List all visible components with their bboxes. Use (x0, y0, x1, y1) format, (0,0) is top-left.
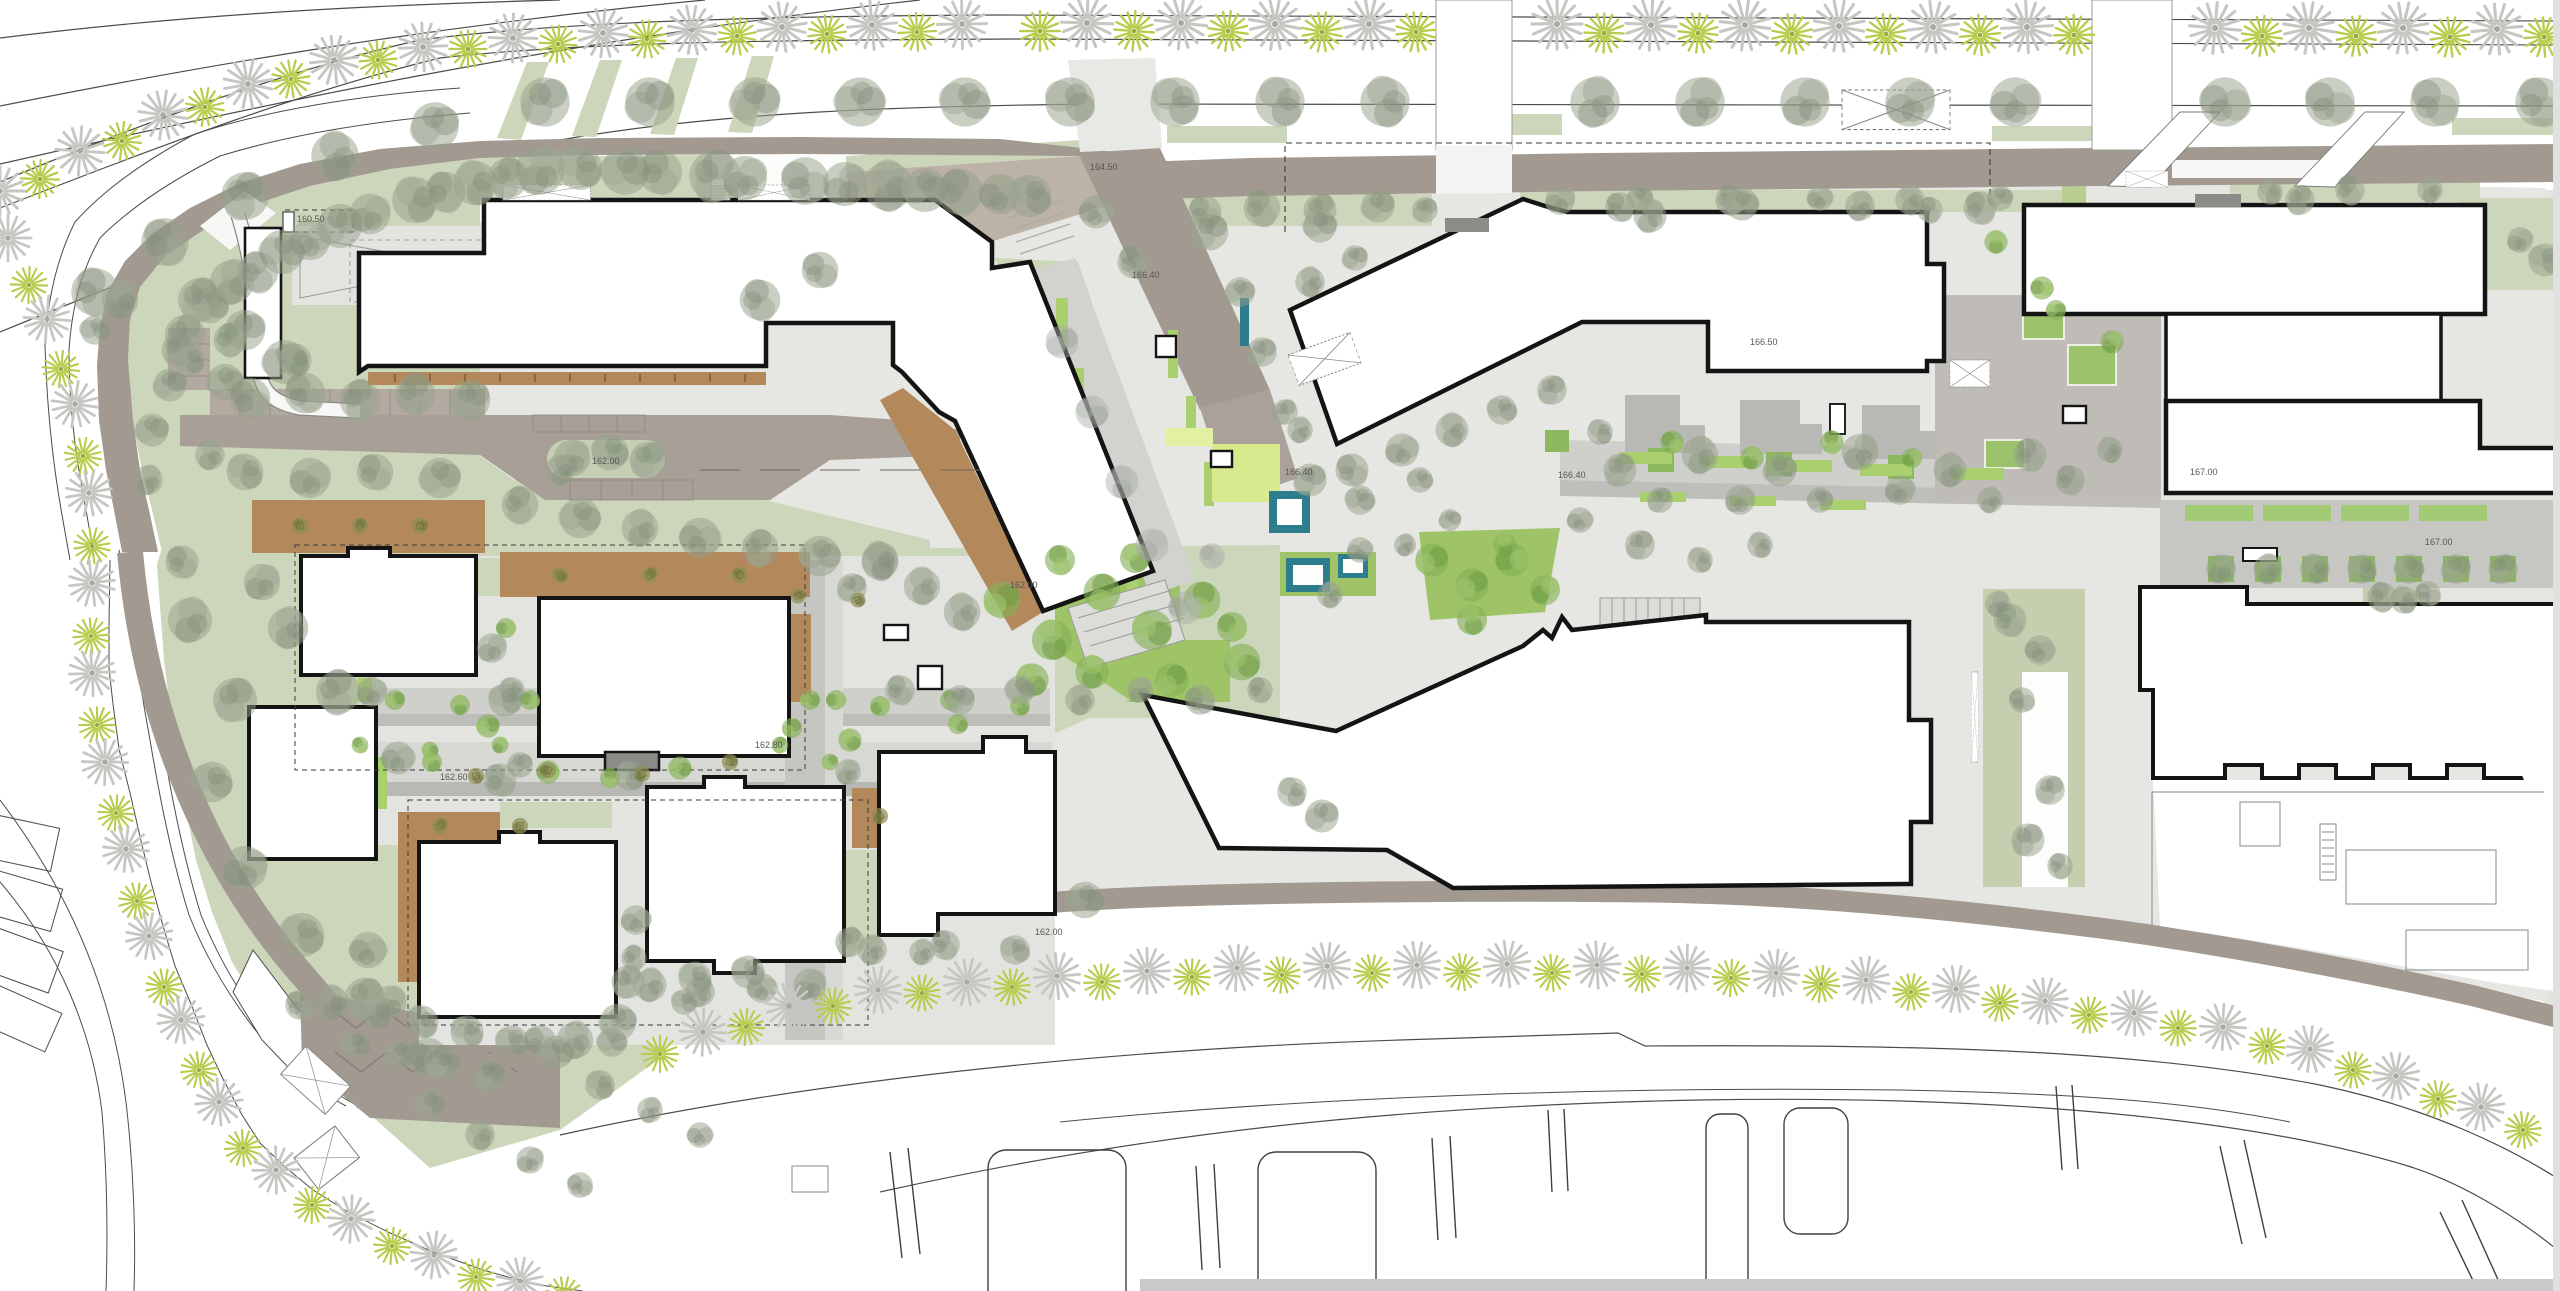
svg-text:166.40: 166.40 (1285, 467, 1313, 477)
svg-text:166.40: 166.40 (1132, 270, 1160, 280)
svg-text:162.60: 162.60 (440, 772, 468, 782)
svg-text:162.00: 162.00 (592, 456, 620, 466)
svg-text:162.00: 162.00 (1035, 927, 1063, 937)
svg-text:160.50: 160.50 (297, 214, 325, 224)
svg-text:162.80: 162.80 (755, 740, 783, 750)
svg-text:162.00: 162.00 (1010, 580, 1038, 590)
svg-text:167.00: 167.00 (2425, 537, 2453, 547)
svg-text:166.40: 166.40 (1558, 470, 1586, 480)
svg-text:164.50: 164.50 (1090, 162, 1118, 172)
svg-text:167.00: 167.00 (2190, 467, 2218, 477)
svg-text:166.50: 166.50 (1750, 337, 1778, 347)
